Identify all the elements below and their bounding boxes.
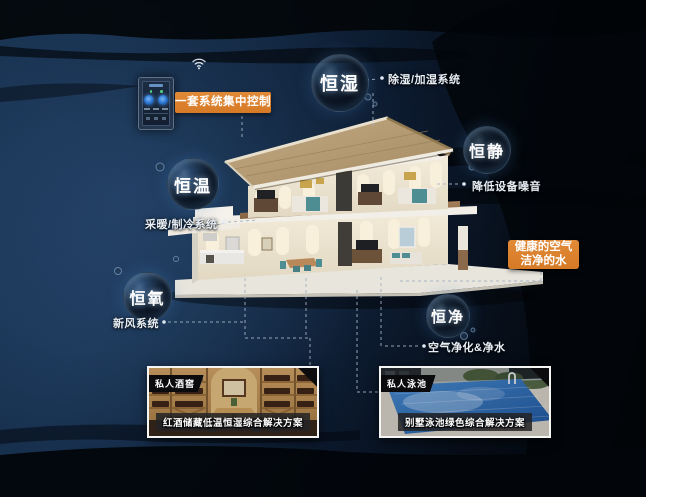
air-water-line1: 健康的空气 [508, 241, 579, 255]
pool-photo: 私人泳池 别墅泳池绿色综合解决方案 [379, 366, 551, 438]
panel-bottom-keys [146, 117, 166, 120]
label-dehumidify-system: 除湿/加湿系统 [388, 71, 461, 87]
wine-cellar-photo: 私人酒窖 红酒储藏低温恒湿综合解决方案 [147, 366, 319, 438]
panel-title-bar [149, 84, 163, 87]
panel-divider [144, 113, 168, 114]
control-panel-screen [142, 81, 170, 126]
wine-cellar-caption: 红酒储藏低温恒湿综合解决方案 [156, 413, 310, 431]
bubble-heng-wen: 恒温 [167, 158, 219, 210]
panel-readout-row [144, 108, 168, 110]
air-water-callout: 健康的空气 洁净的水 [508, 240, 579, 269]
wine-cellar-corner-ribbon [297, 368, 317, 388]
bubble-heng-yang: 恒氧 [123, 272, 172, 321]
label-noise-reduction: 降低设备噪音 [472, 178, 541, 194]
wifi-icon [190, 55, 208, 71]
panel-dial-buttons [144, 95, 168, 105]
pool-corner-ribbon [529, 368, 549, 388]
bubble-heng-jing2: 恒净 [426, 294, 470, 338]
bubble-heng-shi: 恒湿 [311, 54, 369, 112]
label-fresh-air: 新风系统 [113, 315, 159, 331]
smart-control-panel [138, 77, 174, 130]
panel-status-dots [150, 90, 163, 93]
label-heating-cooling: 采暖/制冷系统 [145, 216, 218, 232]
poster-canvas: 一套系统集中控制 健康的空气 洁净的水 恒湿 恒静 恒温 恒氧 恒净 除湿/加湿… [0, 0, 700, 497]
bubble-heng-jing: 恒静 [463, 126, 511, 174]
central-control-callout: 一套系统集中控制 [175, 92, 271, 113]
pool-caption: 别墅泳池绿色综合解决方案 [398, 413, 532, 431]
poster-content-area: 一套系统集中控制 健康的空气 洁净的水 恒湿 恒静 恒温 恒氧 恒净 除湿/加湿… [0, 0, 646, 497]
pool-tag: 私人泳池 [381, 375, 436, 392]
wine-cellar-tag: 私人酒窖 [149, 375, 204, 392]
label-purification: 空气净化&净水 [428, 339, 505, 355]
air-water-line2: 洁净的水 [508, 255, 579, 269]
